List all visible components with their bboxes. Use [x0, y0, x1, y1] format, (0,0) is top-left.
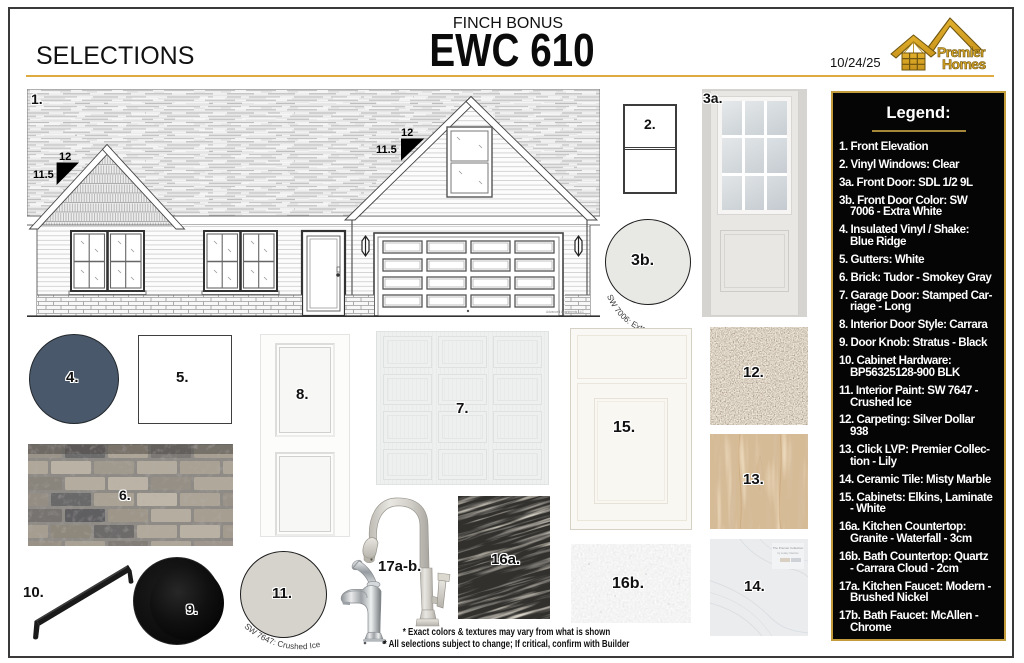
svg-text:The Premier Collection: The Premier Collection: [773, 546, 804, 550]
svg-text:Homes: Homes: [942, 56, 986, 72]
svg-text:12: 12: [59, 151, 71, 163]
svg-text:11.5: 11.5: [376, 144, 397, 156]
svg-text:12: 12: [401, 127, 413, 139]
svg-text:by Lesley Interiors: by Lesley Interiors: [777, 551, 799, 555]
svg-text:11.5: 11.5: [33, 169, 54, 181]
svg-text:SW 7647: Crushed Ice: SW 7647: Crushed Ice: [243, 622, 322, 652]
svg-text:Advanced Apartments LLC: Advanced Apartments LLC: [546, 310, 585, 314]
